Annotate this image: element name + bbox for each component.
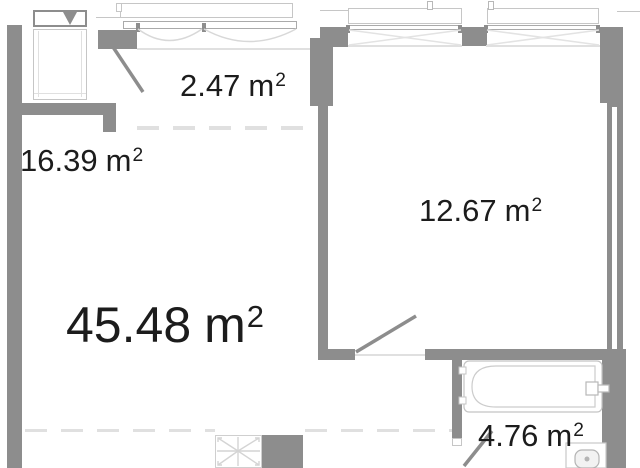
wall-expansion-joint bbox=[612, 107, 617, 350]
living-room-area-label: 16.39m2 bbox=[20, 145, 143, 176]
unit-base: m bbox=[204, 297, 246, 353]
wall-loggia-left-pier bbox=[98, 30, 137, 49]
parapet-tick-2 bbox=[488, 1, 494, 10]
total-area-label: 45.48m2 bbox=[66, 300, 264, 350]
window-frame-mark-2 bbox=[458, 25, 462, 33]
living-area-value: 16.39 bbox=[20, 143, 98, 178]
loggia-area-value: 2.47 bbox=[180, 68, 240, 103]
bedroom-area-value: 12.67 bbox=[419, 193, 497, 228]
unit-base: m bbox=[248, 68, 274, 103]
bedroom-parapet-band-left bbox=[348, 8, 462, 24]
wall-exterior-right-top bbox=[600, 27, 623, 103]
parapet-line-bedroom-left bbox=[320, 10, 348, 11]
utility-shaft-box bbox=[33, 29, 87, 100]
parapet-line-right bbox=[617, 11, 640, 12]
wall-entry-top bbox=[22, 103, 116, 115]
bathroom-door-jamb bbox=[452, 438, 462, 446]
bathtub-faucet bbox=[586, 382, 598, 395]
window-frame-mark-4 bbox=[596, 25, 600, 33]
window-swing-arc-2 bbox=[204, 29, 296, 42]
window-swing-arc-1 bbox=[138, 29, 202, 41]
window-frame-mark-3 bbox=[484, 25, 488, 33]
wall-bathroom-top bbox=[425, 349, 626, 360]
wall-bathroom-right bbox=[602, 360, 626, 468]
wall-vent-shaft-block bbox=[262, 435, 303, 468]
bedroom-window-right bbox=[486, 25, 600, 30]
glazing-hinge-mark-1 bbox=[136, 23, 140, 32]
ventilation-triangle-icon bbox=[63, 12, 77, 25]
unit-sup: 2 bbox=[247, 299, 264, 334]
area-unit: m2 bbox=[546, 418, 584, 453]
wall-bedroom-bottom-left bbox=[318, 349, 355, 360]
bedroom-door-swing bbox=[356, 316, 416, 352]
counter-dashed-right bbox=[305, 429, 452, 432]
unit-sup: 2 bbox=[132, 145, 143, 166]
parapet-line-left bbox=[96, 17, 122, 18]
loggia-area-label: 2.47m2 bbox=[180, 70, 286, 101]
loggia-glazing bbox=[123, 21, 297, 29]
area-unit: m2 bbox=[248, 68, 286, 103]
glazing-hinge-mark-2 bbox=[202, 23, 206, 32]
window-inner-sill-left bbox=[348, 45, 462, 47]
wall-exterior-left bbox=[7, 25, 22, 468]
loggia-boundary-dashed bbox=[137, 126, 308, 130]
unit-sup: 2 bbox=[531, 195, 542, 216]
counter-dashed-left bbox=[25, 429, 215, 432]
window-frame-mark-1 bbox=[346, 25, 350, 33]
unit-base: m bbox=[106, 143, 132, 178]
bedroom-door-sill bbox=[355, 354, 425, 356]
loggia-door-swing bbox=[113, 47, 143, 92]
floor-plan: 45.48m2 16.39m2 2.47m2 12.67m2 4.76m2 bbox=[0, 0, 640, 468]
shaft-inner-line-left bbox=[38, 31, 39, 97]
area-unit: m2 bbox=[505, 193, 543, 228]
wall-bathroom-left bbox=[452, 360, 462, 438]
window-inner-sill-right bbox=[486, 45, 600, 47]
parapet-tick-1 bbox=[427, 1, 433, 10]
bathtub bbox=[459, 361, 609, 412]
unit-base: m bbox=[505, 193, 531, 228]
vent-duct-box bbox=[33, 10, 87, 27]
ventilation-shaft-box bbox=[215, 435, 262, 468]
total-area-value: 45.48 bbox=[66, 297, 191, 353]
bathroom-area-label: 4.76m2 bbox=[478, 420, 584, 451]
loggia-parapet-band bbox=[120, 3, 293, 18]
loggia-sill-line bbox=[137, 48, 310, 50]
bedroom-parapet-band-right bbox=[487, 8, 599, 24]
bathroom-area-value: 4.76 bbox=[478, 418, 538, 453]
wall-loggia-right-pier bbox=[310, 38, 333, 106]
unit-sup: 2 bbox=[275, 70, 286, 91]
bedroom-window-left bbox=[348, 25, 462, 30]
shaft-inner-line-bottom bbox=[34, 93, 86, 94]
wall-room-divider bbox=[318, 103, 328, 358]
area-unit: m2 bbox=[106, 143, 144, 178]
shaft-inner-line-right bbox=[81, 31, 82, 97]
wall-entry-top-stub bbox=[103, 115, 116, 132]
area-unit: m2 bbox=[204, 297, 264, 353]
unit-base: m bbox=[546, 418, 572, 453]
unit-sup: 2 bbox=[573, 420, 584, 441]
loggia-parapet-tick bbox=[116, 3, 122, 12]
bedroom-area-label: 12.67m2 bbox=[419, 195, 542, 226]
wall-bedroom-top-left bbox=[320, 27, 348, 47]
